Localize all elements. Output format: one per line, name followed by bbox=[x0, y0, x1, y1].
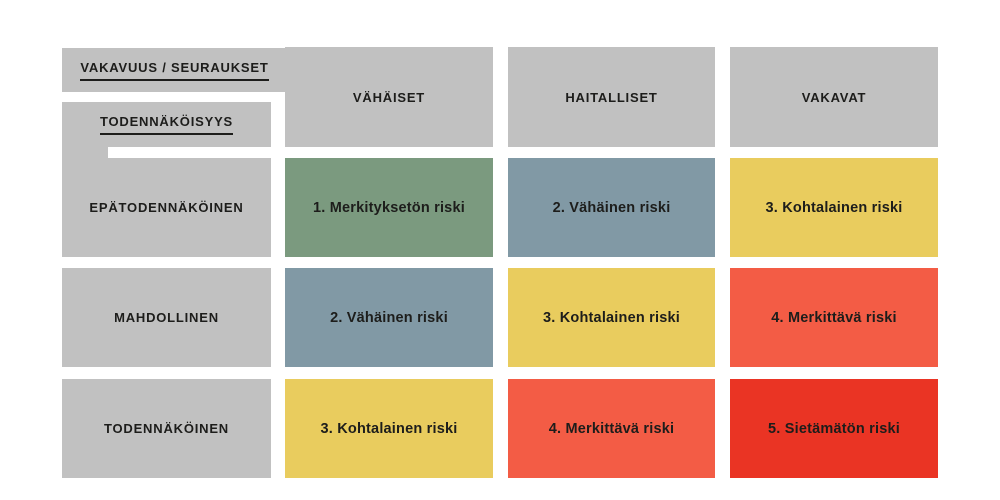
column-header-haitalliset: HAITALLISET bbox=[508, 47, 715, 147]
risk-cell: 4. Merkittävä riski bbox=[508, 379, 715, 478]
risk-cell: 3. Kohtalainen riski bbox=[730, 158, 938, 257]
severity-axis-header: VAKAVUUS / SEURAUKSET bbox=[62, 48, 287, 92]
risk-cell: 3. Kohtalainen riski bbox=[508, 268, 715, 367]
probability-axis-header: TODENNÄKÖISYYS bbox=[62, 102, 271, 147]
column-header-vahaiset: VÄHÄISET bbox=[285, 47, 493, 147]
row-header-label: EPÄTODENNÄKÖINEN bbox=[89, 200, 243, 215]
probability-axis-label: TODENNÄKÖISYYS bbox=[100, 114, 233, 135]
risk-cell: 5. Sietämätön riski bbox=[730, 379, 938, 478]
risk-cell: 1. Merkityksetön riski bbox=[285, 158, 493, 257]
column-header-vakavat: VAKAVAT bbox=[730, 47, 938, 147]
risk-cell: 3. Kohtalainen riski bbox=[285, 379, 493, 478]
row-header-epatodennakoinen: EPÄTODENNÄKÖINEN bbox=[62, 158, 271, 257]
risk-cell: 2. Vähäinen riski bbox=[508, 158, 715, 257]
risk-cell: 2. Vähäinen riski bbox=[285, 268, 493, 367]
row-header-label: MAHDOLLINEN bbox=[114, 310, 219, 325]
severity-axis-label: VAKAVUUS / SEURAUKSET bbox=[80, 60, 268, 81]
column-header-label: VÄHÄISET bbox=[353, 90, 425, 105]
row-header-todennakoinen: TODENNÄKÖINEN bbox=[62, 379, 271, 478]
row-header-label: TODENNÄKÖINEN bbox=[104, 421, 229, 436]
column-header-label: HAITALLISET bbox=[565, 90, 657, 105]
risk-cell: 4. Merkittävä riski bbox=[730, 268, 938, 367]
column-header-label: VAKAVAT bbox=[802, 90, 867, 105]
row-header-mahdollinen: MAHDOLLINEN bbox=[62, 268, 271, 367]
risk-matrix: VAKAVUUS / SEURAUKSET TODENNÄKÖISYYS VÄH… bbox=[0, 0, 1000, 500]
